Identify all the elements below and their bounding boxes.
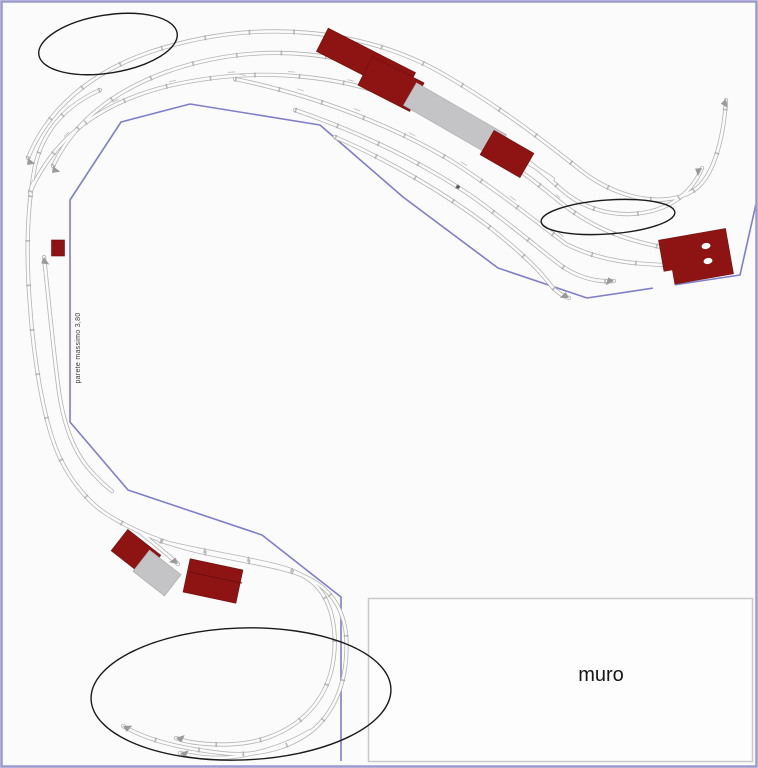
wall-box — [369, 599, 753, 762]
wall-area: muro — [369, 599, 753, 762]
wall-label: muro — [578, 664, 624, 686]
track-plan-canvas: muro — [0, 0, 758, 768]
track-plan-drawing: muro — [0, 0, 758, 768]
signal-hut-left — [52, 240, 65, 256]
table-edge-left — [70, 104, 341, 761]
track-end-arrow — [606, 277, 614, 285]
warehouse-bottom — [183, 559, 243, 603]
wall-height-note: parete massimo 3,80 — [75, 312, 82, 383]
reference-dot — [456, 185, 460, 189]
engine-shed-right — [650, 228, 733, 293]
buildings — [52, 28, 734, 603]
